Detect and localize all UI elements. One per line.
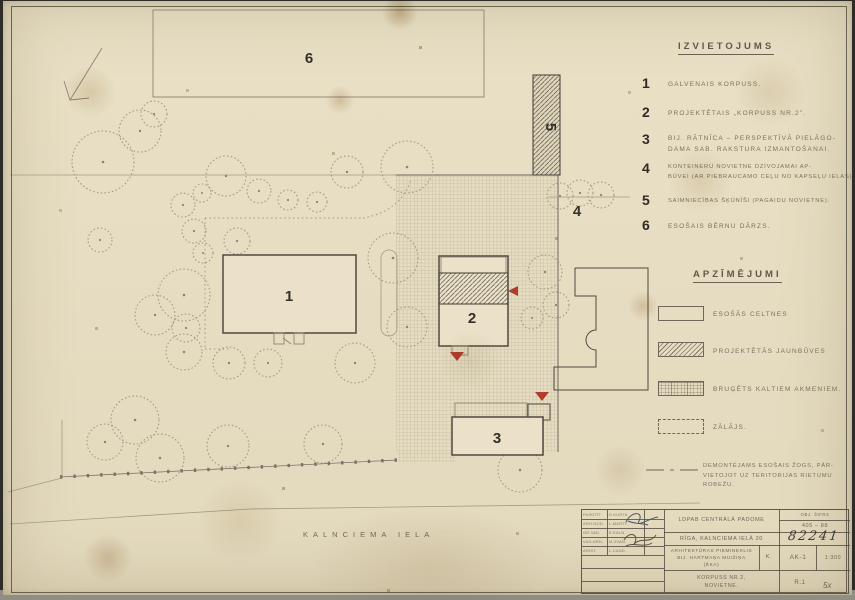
stage-code: AK-1: [781, 554, 815, 561]
staff-role: GR.VAD.: [583, 530, 607, 535]
izv-num-5: 5: [642, 192, 650, 208]
staff-role: ARHIT.: [583, 548, 607, 553]
staff-role: PASŪTĪT.: [583, 512, 607, 517]
revision: R.1: [781, 580, 819, 586]
walkway-strip: [381, 250, 397, 336]
plan-label-5: 5: [542, 123, 559, 131]
izv-text-3: BIJ. RĀTNĪCA – PERSPEKTĪVĀ PIELĀGO- DAMA…: [668, 134, 850, 155]
tb-row-line: [664, 570, 850, 571]
fence-line: [60, 460, 397, 477]
org-name: LDPAB CENTRĀLĀ PADOME: [666, 517, 777, 523]
tb-row-line: [582, 568, 664, 569]
izvietojums-title: IZVIETOJUMS: [678, 41, 774, 55]
tb-row-line: [664, 545, 850, 546]
legend-note-line-icon: [646, 467, 701, 473]
signature-icon: [614, 508, 674, 556]
tb-divider: [607, 510, 608, 555]
obj-code-label: OBJ. ŠIFRS: [781, 512, 849, 517]
izv-text-6: ESOŠAIS BĒRNU DĀRZS.: [668, 222, 850, 233]
izv-num-3: 3: [642, 131, 650, 147]
legend-symbol-projected: [658, 342, 704, 357]
izv-num-1: 1: [642, 75, 650, 91]
address: RĪGA, KALNCIEMA IELĀ 20: [666, 536, 777, 542]
izv-num-6: 6: [642, 217, 650, 233]
plan-label-3: 3: [493, 430, 501, 447]
k-label: K.: [760, 554, 778, 560]
plan-label-4: 4: [573, 203, 582, 220]
izv-text-4: KONTEINERU NOVIETNE DZĪVOJAMAI AP- BŪVEI…: [668, 163, 853, 182]
plan-label-6: 6: [305, 50, 313, 67]
pencil-note: 5x: [823, 581, 831, 590]
tb-row-line: [779, 520, 850, 521]
staff-role: VAD.ARH.: [583, 539, 607, 544]
scanned-drawing-page: { "plan": { "street_label": "KALNCIEMA I…: [0, 0, 855, 600]
sheet-title: KORPUSS NR.2, NOVIETNE.: [666, 575, 777, 591]
legend-label-lawn: ZĀLĀJS.: [713, 423, 747, 434]
west-boundary-line: [8, 420, 62, 492]
izv-text-5: SAIMNIECĪBAS ŠĶŪNĪŠI (PAGAIDU NOVIETNE).: [668, 197, 853, 207]
plan-label-2: 2: [468, 310, 476, 327]
legend-label-projected: PROJEKTĒTĀS JAUNBŪVES: [713, 347, 826, 358]
kindergarten-area-6: [153, 10, 484, 97]
neighbor-building: [554, 268, 648, 390]
building-2: [439, 256, 508, 355]
staff-role: ARH.NOD.: [583, 521, 607, 526]
object-name: ARHITEKTŪRAS PIEMINEKLIS BIJ. HARTMAŅA M…: [666, 548, 757, 568]
street-label: KALNCIEMA IELA: [303, 530, 434, 539]
title-block: PASŪTĪT. D.KURTA ARH.NOD. L.MARTF. GR.VA…: [581, 509, 849, 594]
legend-label-existing: ESOŠĀS CELTNES: [713, 310, 788, 321]
izv-text-2: PROJEKTĒTAIS „KORPUSS NR.2”.: [668, 109, 850, 120]
north-arrow-icon: [64, 48, 102, 100]
legend-symbol-lawn: [658, 419, 704, 434]
paper-specks: [0, 0, 1, 1]
tb-divider: [816, 545, 817, 570]
tb-divider: [779, 510, 780, 593]
sheet: 1 2 3 4 5 6 KALNCIEMA IELA IZVIETOJUMS 1…: [3, 1, 852, 595]
inventory-number: 82241: [787, 529, 840, 544]
legend-label-paving: BRUĢĒTS KALTIEM AKMENIEM.: [713, 385, 841, 396]
izv-num-2: 2: [642, 104, 650, 120]
legend-symbol-existing: [658, 306, 704, 321]
legend-symbol-paving: [658, 381, 704, 396]
izv-text-1: GALVENAIS KORPUSS.: [668, 80, 850, 91]
tb-row-line: [582, 581, 664, 582]
izv-num-4: 4: [642, 160, 650, 176]
legend-note: DEMONTĒJAMS ESOŠAIS ŽOGS, PĀR- VIETOJOT …: [703, 462, 853, 491]
plan-label-1: 1: [285, 288, 293, 305]
scale-value: 1:300: [818, 555, 848, 561]
apzimejumi-title: APZĪMĒJUMI: [693, 269, 782, 283]
